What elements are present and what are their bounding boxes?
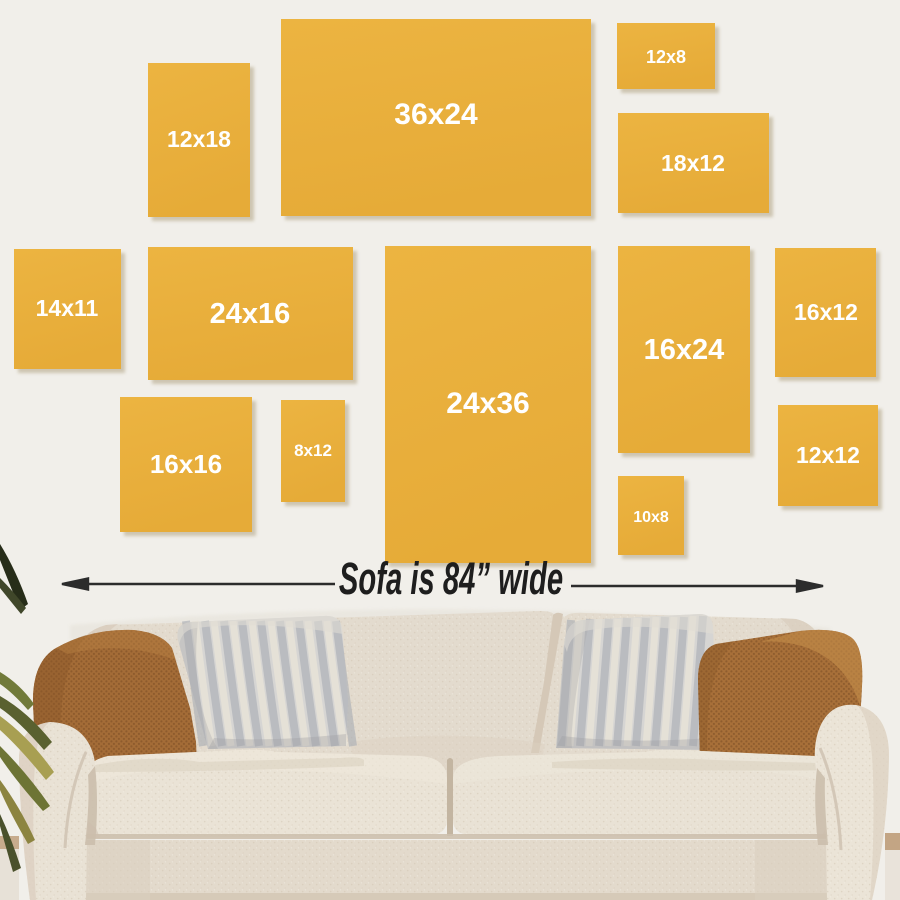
svg-text:24x16: 24x16	[210, 298, 291, 330]
svg-text:Sofa is 84” wide: Sofa is 84” wide	[339, 555, 563, 605]
svg-text:36x24: 36x24	[394, 98, 478, 131]
svg-text:24x36: 24x36	[446, 387, 529, 420]
svg-text:16x24: 16x24	[644, 334, 725, 366]
svg-text:12x18: 12x18	[167, 126, 231, 152]
svg-text:10x8: 10x8	[633, 509, 669, 526]
svg-text:12x12: 12x12	[796, 442, 860, 468]
svg-text:14x11: 14x11	[36, 295, 99, 321]
svg-text:12x8: 12x8	[646, 47, 686, 67]
svg-text:8x12: 8x12	[294, 441, 332, 460]
svg-text:16x16: 16x16	[150, 449, 222, 479]
svg-text:16x12: 16x12	[794, 299, 858, 325]
svg-text:18x12: 18x12	[661, 150, 725, 176]
